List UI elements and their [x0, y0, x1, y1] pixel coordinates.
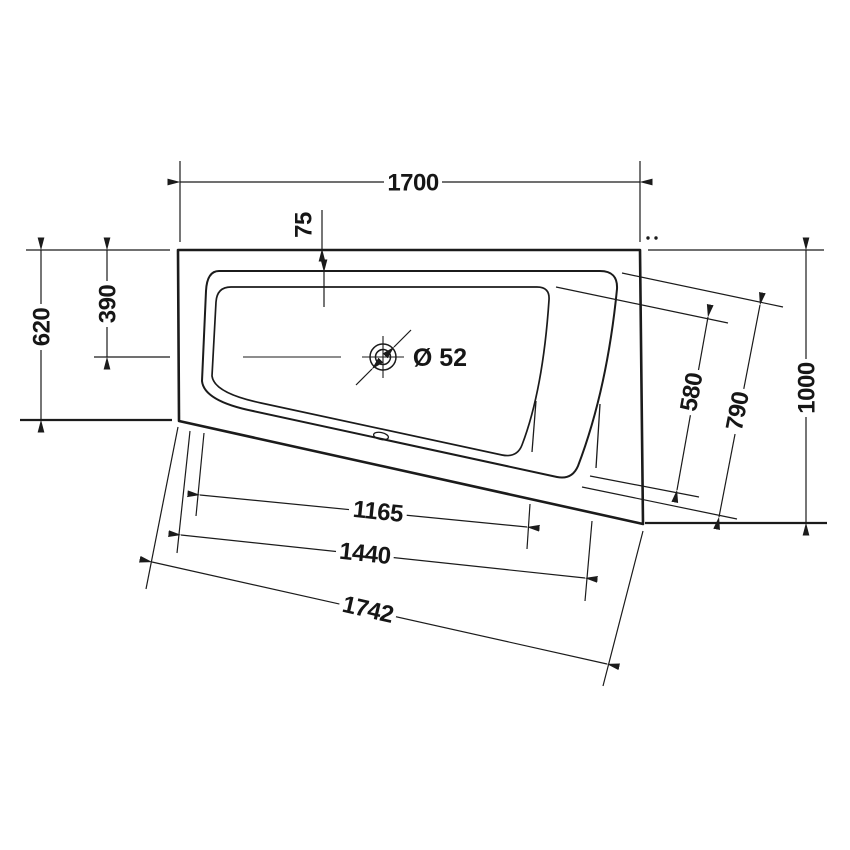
- technical-drawing-canvas: Ø 52 1700 75 620 390: [0, 0, 850, 850]
- extension-line: [603, 531, 643, 686]
- dimension-rim-inset: 75: [290, 210, 324, 307]
- drain-leader-arrow-1: [394, 330, 411, 347]
- dimension-label-rim-inset: 75: [290, 212, 317, 238]
- dimension-label-left-to-drain: 390: [94, 285, 121, 324]
- dimension-label-top-width: 1700: [387, 169, 439, 196]
- dimension-label-front-middle: 1440: [338, 538, 392, 570]
- extension-line: [590, 476, 699, 497]
- extension-line: [582, 487, 737, 519]
- drain-group: Ø 52: [243, 330, 467, 385]
- overflow-marking: [373, 431, 389, 441]
- extension-line: [196, 433, 204, 516]
- reference-dot: [646, 236, 649, 239]
- drawing-page: Ø 52 1700 75 620 390: [0, 0, 850, 850]
- dimension-front-total: 1742: [146, 427, 643, 686]
- dimension-label-right-inner: 580: [675, 371, 708, 414]
- reference-dots: [646, 236, 657, 239]
- drain-leader-arrow-2: [356, 369, 372, 385]
- extension-line: [585, 521, 592, 601]
- dimension-side-total: 1000: [645, 250, 827, 523]
- dimension-left-total: 620: [20, 250, 172, 420]
- tub-rim-contour: [202, 271, 617, 478]
- dimension-label-side-total: 1000: [793, 362, 820, 414]
- extension-line: [527, 504, 530, 549]
- dimension-label-right-outer: 790: [721, 390, 755, 433]
- extension-line: [622, 273, 783, 307]
- drain-diameter-label: Ø 52: [413, 344, 467, 372]
- backrest-slope-line-2: [596, 404, 600, 468]
- dimension-label-front-inner: 1165: [352, 496, 405, 528]
- tub-basin-contour: [212, 287, 549, 456]
- dimension-top-width: 1700: [180, 161, 640, 242]
- dimension-label-left-total: 620: [28, 308, 55, 347]
- dimension-label-front-total: 1742: [340, 591, 396, 629]
- dimension-left-to-drain: 390: [94, 250, 170, 357]
- reference-dot: [654, 236, 657, 239]
